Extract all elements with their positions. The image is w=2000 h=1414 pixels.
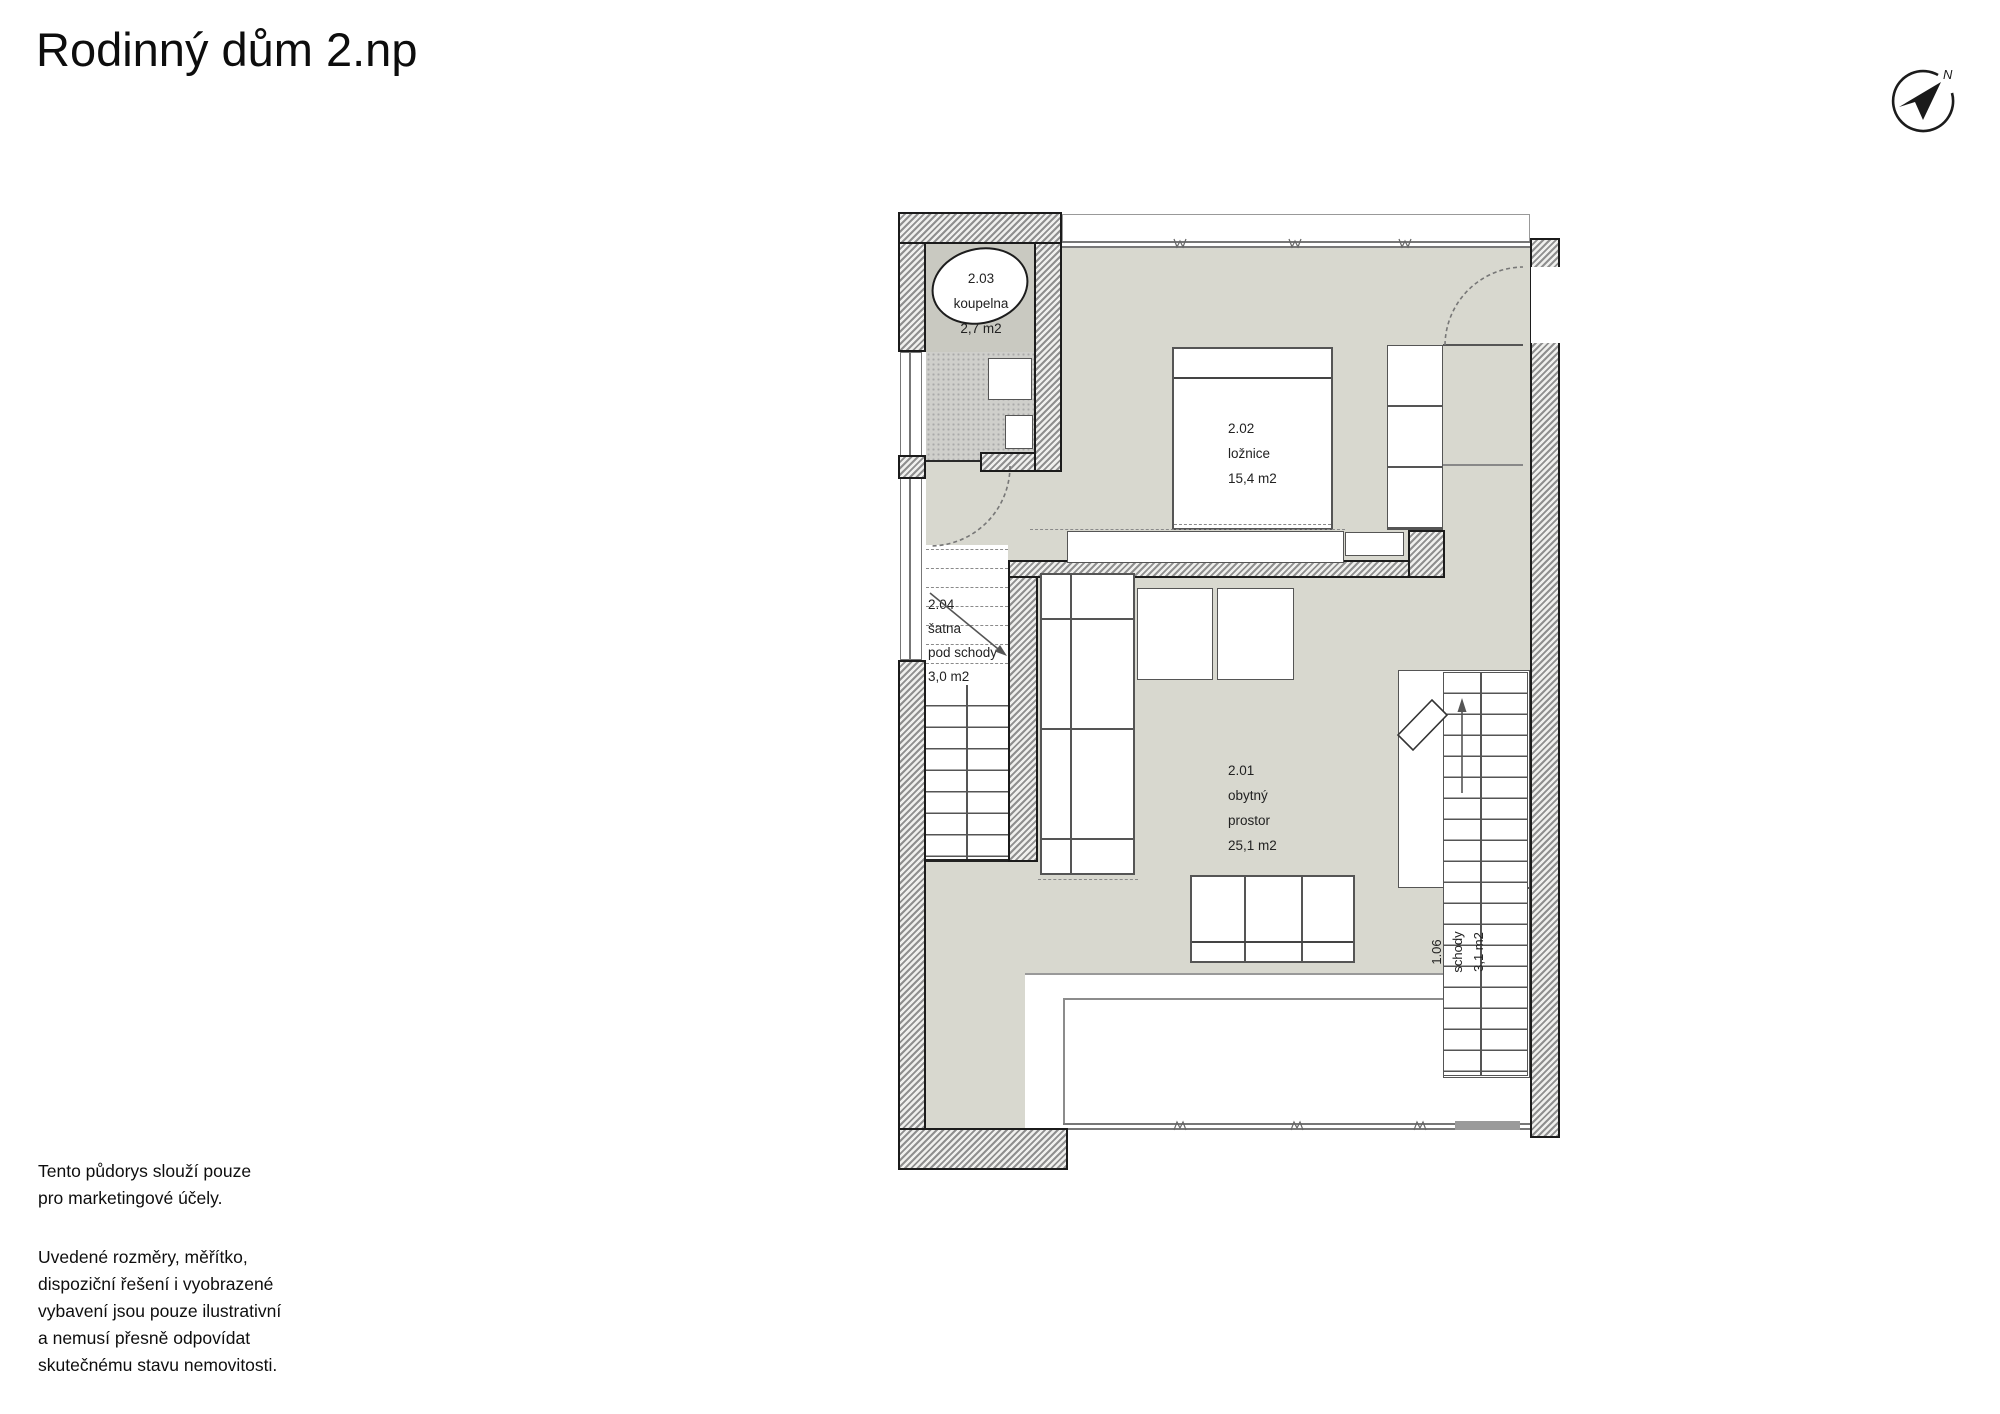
sofa bbox=[1040, 573, 1135, 875]
room-area: 15,4 m2 bbox=[1228, 466, 1277, 491]
disclaimer-paragraph-2: Uvedené rozměry, měřítko, dispoziční řeš… bbox=[38, 1244, 281, 1379]
staircase-left bbox=[926, 685, 1008, 862]
window-band-top bbox=[1062, 241, 1530, 248]
room-label-closet: 2.04 šatna pod schody 3,0 m2 bbox=[928, 593, 997, 689]
room-label-living: 2.01 obytný prostor 25,1 m2 bbox=[1228, 758, 1277, 858]
wall-bathroom-top bbox=[898, 212, 1062, 244]
wall-divider-stub bbox=[1408, 530, 1445, 578]
page-title: Rodinný dům 2.np bbox=[36, 22, 417, 77]
wardrobe bbox=[1387, 345, 1443, 530]
closet-dash bbox=[926, 568, 1008, 569]
wall-right-exterior bbox=[1530, 238, 1560, 1138]
room-id: 2.01 bbox=[1228, 758, 1277, 783]
room-id: 2.03 bbox=[933, 266, 1029, 291]
room-area: 25,1 m2 bbox=[1228, 833, 1277, 858]
disclaimer-paragraph-1: Tento půdorys slouží pouze pro marketing… bbox=[38, 1158, 251, 1212]
sideboard-small bbox=[1345, 532, 1404, 556]
living-dashed-line bbox=[1038, 879, 1138, 880]
railing-segment bbox=[1455, 1121, 1520, 1130]
room-area: 3,1 m2 bbox=[1468, 913, 1489, 991]
room-id: 2.02 bbox=[1228, 416, 1277, 441]
sideboard bbox=[1067, 531, 1344, 563]
sink bbox=[988, 358, 1032, 400]
room-label-stairs: 1.06 schody 3,1 m2 bbox=[1426, 913, 1510, 991]
room-area: 2,7 m2 bbox=[933, 316, 1029, 341]
room-id: 1.06 bbox=[1426, 913, 1447, 991]
door-opening-gap bbox=[1531, 267, 1560, 343]
wall-left-pier bbox=[898, 455, 926, 479]
entry-step-line bbox=[1443, 464, 1523, 466]
floor-hall-strip bbox=[926, 973, 1025, 1130]
bed-dashed-edge bbox=[1174, 524, 1331, 525]
room-name: schody bbox=[1447, 913, 1468, 991]
room-label-bedroom: 2.02 ložnice 15,4 m2 bbox=[1228, 416, 1277, 491]
room-name: obytný bbox=[1228, 783, 1277, 808]
room-name-2: pod schody bbox=[928, 641, 997, 665]
roof-overhang-strip bbox=[1062, 214, 1530, 242]
room-area: 3,0 m2 bbox=[928, 665, 997, 689]
closet-dash bbox=[926, 549, 1008, 550]
window-band-left bbox=[900, 352, 922, 660]
room-label-bathroom: 2.03 koupelna 2,7 m2 bbox=[933, 266, 1029, 341]
sofa-bottom bbox=[1190, 875, 1355, 963]
svg-text:N: N bbox=[1943, 67, 1953, 82]
floor-plan: 2.03 koupelna 2,7 m2 2.02 ložnice 15,4 m… bbox=[895, 208, 1563, 1173]
armchair-left bbox=[1137, 588, 1213, 680]
staircase-right bbox=[1443, 672, 1528, 1076]
compass-north-icon: N bbox=[1886, 64, 1960, 138]
toilet bbox=[1005, 415, 1033, 449]
wall-bathroom-left bbox=[898, 242, 926, 352]
room-name: šatna bbox=[928, 617, 997, 641]
room-id: 2.04 bbox=[928, 593, 997, 617]
closet-dash bbox=[926, 587, 1008, 588]
room-name: koupelna bbox=[933, 291, 1029, 316]
bedroom-dashed-line bbox=[1030, 529, 1345, 530]
wall-bathroom-right bbox=[1034, 242, 1062, 472]
wall-bathroom-bottom-stub bbox=[980, 452, 1036, 472]
wall-left-exterior bbox=[898, 660, 926, 1130]
wall-bottom-left bbox=[898, 1128, 1068, 1170]
room-name-2: prostor bbox=[1228, 808, 1277, 833]
wall-stair-spine bbox=[1008, 560, 1038, 862]
room-name: ložnice bbox=[1228, 441, 1277, 466]
armchair-right bbox=[1217, 588, 1294, 680]
